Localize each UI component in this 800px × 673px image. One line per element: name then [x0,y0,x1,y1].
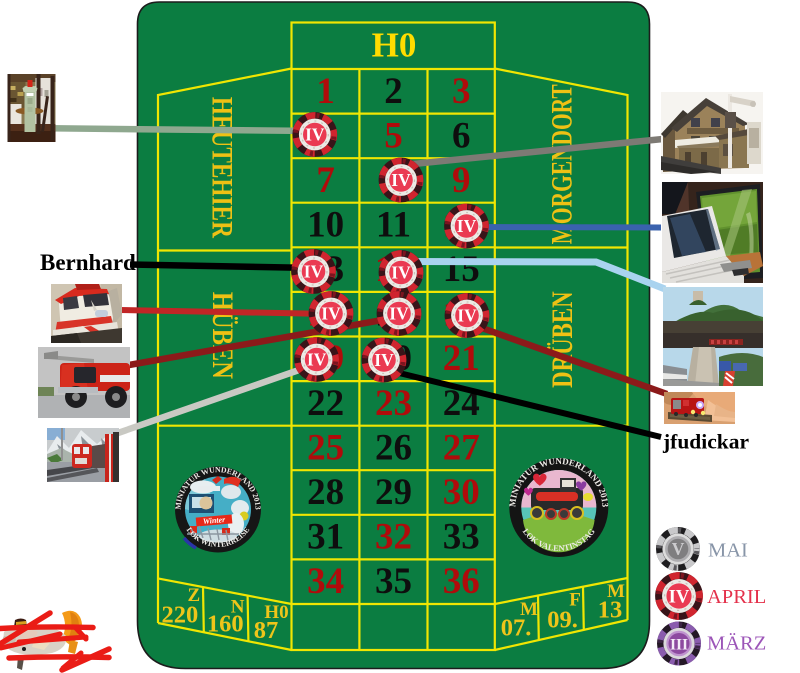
svg-text:2: 2 [384,71,403,112]
svg-text:31: 31 [307,517,344,558]
svg-text:87: 87 [254,617,279,644]
svg-text:160: 160 [207,611,244,638]
svg-text:34: 34 [307,561,344,602]
svg-text:23: 23 [375,383,412,424]
svg-text:6: 6 [452,115,471,156]
svg-text:21: 21 [443,338,480,379]
svg-text:30: 30 [443,472,480,513]
svg-text:MORGENDORT: MORGENDORT [546,84,579,244]
svg-text:220: 220 [162,602,199,629]
svg-text:9: 9 [452,160,471,201]
svg-text:27: 27 [443,427,480,468]
svg-text:07.: 07. [501,615,532,642]
svg-text:26: 26 [375,427,412,468]
svg-text:15: 15 [443,249,480,290]
svg-text:7: 7 [316,160,335,201]
svg-text:35: 35 [375,561,412,602]
svg-text:HEUTEHIER: HEUTEHIER [206,97,239,238]
svg-text:1: 1 [316,71,335,112]
svg-text:10: 10 [307,205,344,246]
svg-text:3: 3 [452,71,471,112]
svg-text:jfudickar: jfudickar [662,430,749,454]
svg-text:13: 13 [598,597,623,624]
svg-text:MAI: MAI [708,540,748,562]
svg-text:09.: 09. [547,607,578,634]
svg-text:36: 36 [443,561,480,602]
svg-text:22: 22 [307,383,344,424]
svg-text:33: 33 [443,517,480,558]
svg-text:28: 28 [307,472,344,513]
svg-text:MÄRZ: MÄRZ [707,632,766,655]
svg-text:5: 5 [384,115,403,156]
svg-text:HÜBEN: HÜBEN [206,292,239,379]
svg-text:APRIL: APRIL [707,586,766,608]
svg-text:DRÜBEN: DRÜBEN [546,291,579,388]
svg-text:29: 29 [375,472,412,513]
svg-text:Bernhard: Bernhard [40,250,136,275]
svg-text:32: 32 [375,517,412,558]
svg-text:H0: H0 [372,26,417,65]
svg-text:11: 11 [376,205,411,246]
svg-text:25: 25 [307,427,344,468]
